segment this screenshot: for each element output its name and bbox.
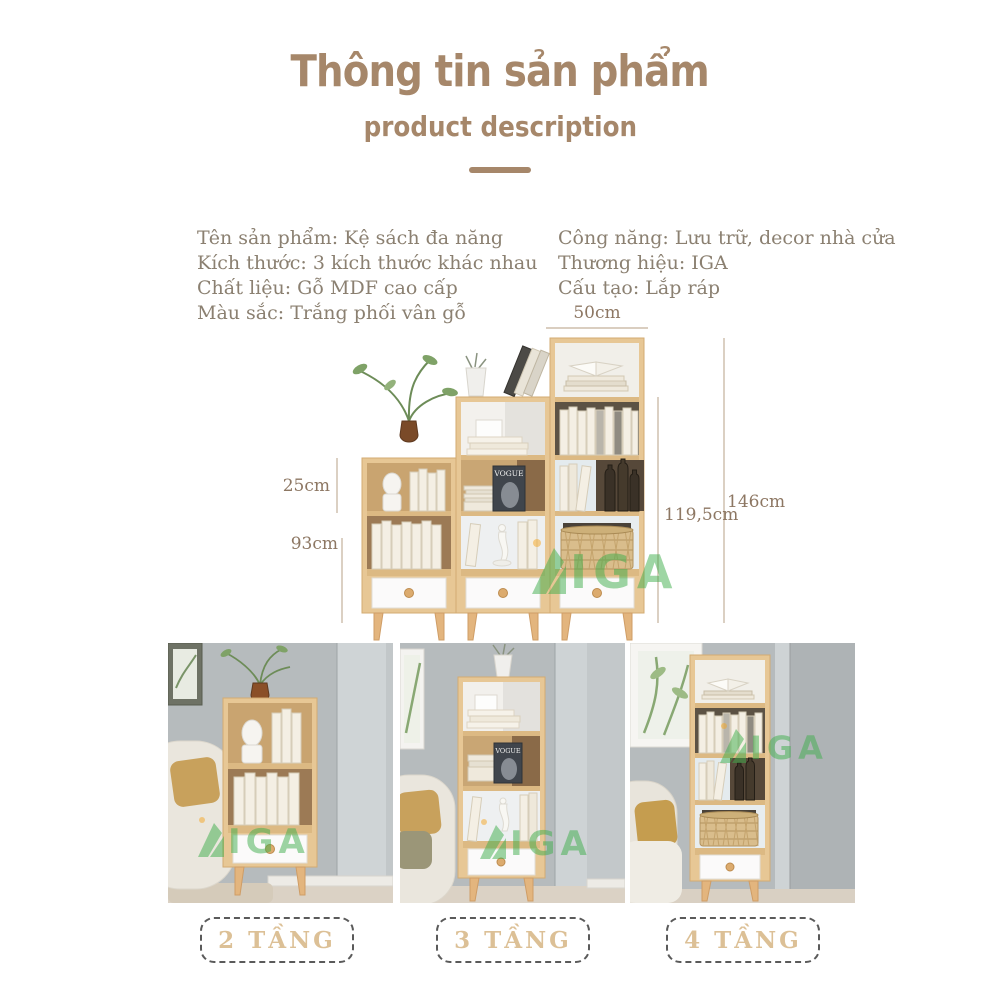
books [372, 521, 441, 569]
magazine-stack [464, 486, 495, 511]
legs [374, 613, 444, 640]
bookshelf [690, 655, 770, 901]
variant-label: 2 TẦNG [218, 927, 336, 954]
page-title-text: Thông tin sản phẩm [291, 46, 709, 97]
books [410, 469, 445, 511]
page-title: Thông tin sản phẩm [0, 46, 1000, 97]
dim-top-width: 50cm [573, 303, 620, 323]
variant-badge-4-tier: 4 TẦNG [666, 917, 820, 963]
photo-2-tier: IGA [168, 643, 393, 903]
sofa [400, 775, 455, 903]
watermark-text: IGA [750, 729, 828, 767]
page: Thông tin sản phẩm product description T… [0, 0, 1000, 1000]
photo-4-tier: IGA [630, 643, 855, 903]
room-scene-4-tier: IGA [630, 643, 855, 903]
leaning-books [504, 346, 549, 396]
room-scene-2-tier: IGA [168, 643, 393, 903]
spec-line: Thương hiệu: IGA [558, 251, 896, 276]
product-dimensions-image: 50cm 25cm 93cm 119,5cm 146cm [280, 290, 790, 650]
iga-watermark: IGA [720, 723, 828, 767]
spec-line: Kích thước: 3 kích thước khác nhau [197, 251, 537, 276]
books [560, 407, 638, 455]
open-book [564, 362, 628, 391]
bust-figurine [383, 473, 401, 511]
title-divider [469, 167, 531, 173]
watermark-text: IGA [510, 824, 592, 864]
room-scene-3-tier: VOGUE IGA [400, 643, 625, 903]
dim-tier-height: 25cm [283, 476, 330, 496]
variant-label: 4 TẦNG [684, 927, 802, 954]
wicker-basket [700, 810, 758, 846]
page-subtitle-text: product description [363, 110, 636, 143]
shelf-2-tier [351, 353, 459, 640]
plant-vase [351, 353, 459, 442]
watermark-dot [533, 539, 541, 547]
variant-label: 3 TẦNG [454, 927, 572, 954]
photo-3-tier: VOGUE IGA [400, 643, 625, 903]
svg-text:VOGUE: VOGUE [494, 747, 521, 755]
page-subtitle: product description [0, 110, 1000, 143]
drawer-knob [499, 589, 508, 598]
variant-badge-2-tier: 2 TẦNG [200, 917, 354, 963]
watermark-text: IGA [570, 545, 678, 599]
legs [562, 613, 632, 640]
sofa [630, 781, 682, 903]
vogue-magazine: VOGUE [493, 466, 525, 511]
vogue-title: VOGUE [493, 469, 523, 478]
legs [468, 613, 538, 640]
watermark-text: IGA [228, 822, 310, 862]
variant-badge-3-tier: 3 TẦNG [436, 917, 590, 963]
dim-large-height: 146cm [727, 492, 785, 512]
cup-vase [466, 353, 486, 396]
shelf-3-tier: VOGUE [456, 346, 550, 640]
bookshelf-trio-drawing: 50cm 25cm 93cm 119,5cm 146cm [280, 290, 790, 650]
dim-small-height: 93cm [291, 534, 338, 554]
spec-line: Tên sản phẩm: Kệ sách đa năng [197, 226, 537, 251]
spec-line: Công năng: Lưu trữ, decor nhà cửa [558, 226, 896, 251]
drawer-knob [405, 589, 414, 598]
